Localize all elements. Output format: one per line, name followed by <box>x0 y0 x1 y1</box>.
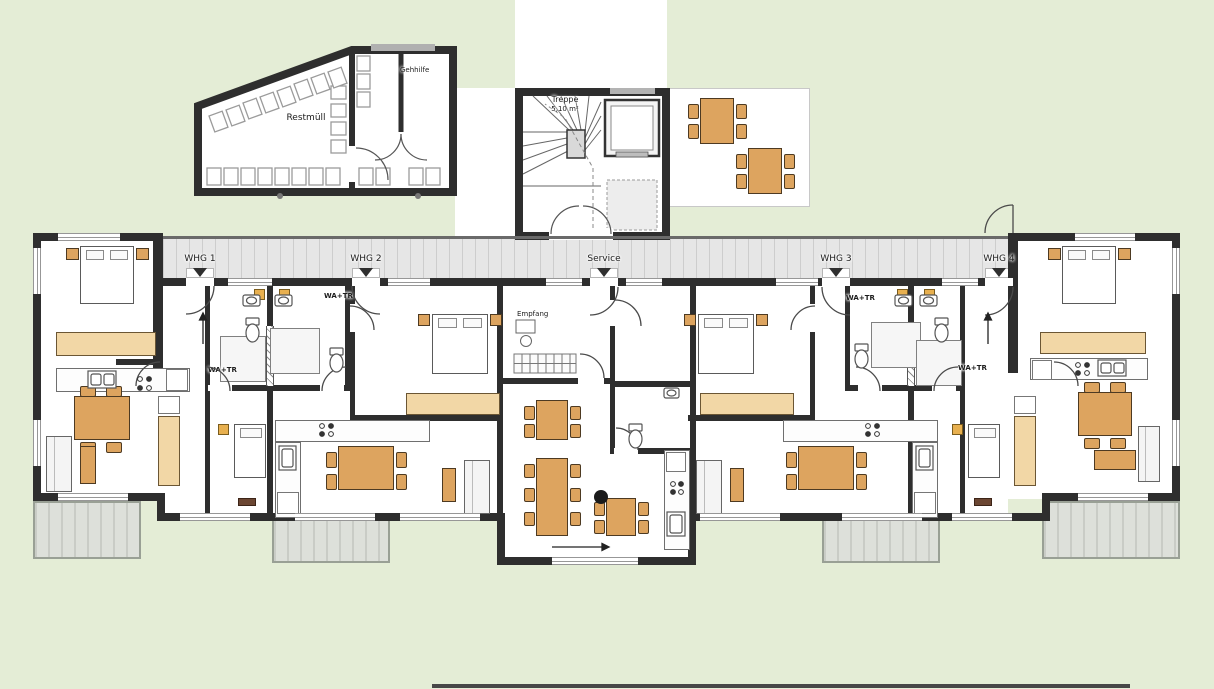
door-opening <box>578 378 604 384</box>
wardrobe <box>406 393 500 415</box>
chair <box>786 474 797 490</box>
chair <box>638 520 649 534</box>
coffee-table <box>442 468 456 502</box>
kitchen-counter <box>783 420 938 442</box>
door-opening <box>590 278 618 286</box>
door-opening <box>320 385 344 391</box>
sofa <box>464 460 490 514</box>
cabinet <box>1014 396 1036 414</box>
wardrobe <box>1040 332 1146 354</box>
door-opening <box>350 304 355 332</box>
equipment-icon <box>952 424 963 435</box>
washer-dryer-icon <box>279 289 290 300</box>
nightstand <box>1048 248 1061 260</box>
shower <box>871 322 921 368</box>
tv <box>974 498 992 506</box>
balcony <box>1042 501 1180 559</box>
door-opening <box>352 278 380 286</box>
entrance-marker <box>193 268 207 277</box>
dining-table <box>798 446 854 490</box>
chair <box>786 452 797 468</box>
door-opening <box>810 304 815 332</box>
cabinet <box>166 369 188 391</box>
balcony-door <box>1078 493 1148 501</box>
chair <box>736 104 747 119</box>
dining-table <box>700 98 734 144</box>
chair <box>106 386 122 397</box>
cabinet <box>914 492 936 514</box>
entrance-marker <box>359 268 373 277</box>
chair <box>326 452 337 468</box>
stairs-area-label: 5,10 m² <box>535 105 595 113</box>
washer-dryer-icon <box>254 289 265 300</box>
window <box>700 513 780 521</box>
site-boundary <box>432 684 1130 688</box>
reception-label: Empfang <box>517 310 548 318</box>
door-opening <box>186 278 214 286</box>
wc-wall <box>610 381 615 454</box>
dining-table <box>606 498 636 536</box>
washer-dryer-label: WA+TR <box>958 364 987 372</box>
unit-label-whg-4: WHG 4 <box>966 254 1032 264</box>
chair <box>1084 382 1100 393</box>
chair <box>524 406 535 420</box>
chair <box>856 452 867 468</box>
nightstand <box>490 314 502 326</box>
door-opening <box>858 385 882 391</box>
nightstand <box>684 314 696 326</box>
walking-aid-room-label: Gehhilfe <box>400 66 429 74</box>
chair <box>688 104 699 119</box>
wardrobe <box>700 393 794 415</box>
facade-wall <box>163 278 1008 286</box>
window <box>546 278 582 286</box>
wardrobe <box>1014 416 1036 486</box>
chair <box>570 488 581 502</box>
door-opening <box>614 448 638 454</box>
shower <box>916 340 962 386</box>
double-bed <box>1062 246 1116 304</box>
nightstand <box>418 314 430 326</box>
entrance-marker <box>597 268 611 277</box>
chair <box>106 442 122 453</box>
chair <box>326 474 337 490</box>
dining-table <box>748 148 782 194</box>
chair <box>396 474 407 490</box>
balcony-door <box>842 513 922 521</box>
window <box>228 278 272 286</box>
nightstand <box>756 314 768 326</box>
window <box>626 278 662 286</box>
cabinet <box>666 452 686 472</box>
room-wall <box>960 385 965 519</box>
window <box>1172 248 1180 294</box>
chair <box>570 464 581 478</box>
washer-dryer-label: WA+TR <box>324 292 353 300</box>
window <box>1172 420 1180 466</box>
chair <box>524 464 535 478</box>
door-opening <box>610 300 615 326</box>
coffee-table <box>80 446 96 484</box>
chair <box>594 520 605 534</box>
chair <box>524 488 535 502</box>
chair <box>80 386 96 397</box>
window <box>1075 233 1135 241</box>
stairs-label: Treppe <box>535 95 595 104</box>
window <box>58 233 120 241</box>
chair <box>736 174 747 189</box>
waste-room-label: Restmüll <box>273 113 339 123</box>
window <box>388 278 430 286</box>
single-bed <box>234 424 266 478</box>
coffee-table <box>730 468 744 502</box>
window <box>33 420 41 466</box>
coffee-table <box>1094 450 1136 470</box>
entrance-door <box>552 557 638 565</box>
entrance-marker <box>992 268 1006 277</box>
chair <box>570 406 581 420</box>
sofa <box>696 460 722 514</box>
chair <box>570 424 581 438</box>
entrance-marker <box>829 268 843 277</box>
bath-wall <box>205 286 210 390</box>
chair <box>856 474 867 490</box>
chair <box>1110 382 1126 393</box>
balcony-door <box>58 493 128 501</box>
washer-dryer-icon <box>924 289 935 300</box>
sofa <box>46 436 72 492</box>
chair <box>784 174 795 189</box>
chair <box>570 512 581 526</box>
dining-table <box>74 396 130 440</box>
chair <box>736 154 747 169</box>
room-wall <box>116 359 158 365</box>
walkway-railing <box>163 236 1008 239</box>
door-opening <box>822 278 850 286</box>
double-bed <box>80 246 134 304</box>
wc-wall <box>610 381 690 387</box>
chair <box>524 424 535 438</box>
dining-table <box>338 446 394 490</box>
nightstand <box>1118 248 1131 260</box>
unit-label-whg-3: WHG 3 <box>803 254 869 264</box>
cabinet <box>277 492 299 514</box>
wardrobe <box>158 416 180 486</box>
washer-dryer-icon <box>897 289 908 300</box>
shower <box>220 336 266 382</box>
kitchen-counter <box>275 420 430 442</box>
unit-label-service: Service <box>571 254 637 264</box>
dining-table <box>536 458 568 536</box>
window <box>33 248 41 294</box>
equipment-icon <box>218 424 229 435</box>
chair <box>524 512 535 526</box>
wardrobe <box>56 332 156 356</box>
room-wall <box>205 385 210 519</box>
party-wall <box>267 286 273 519</box>
unit-label-whg-2: WHG 2 <box>333 254 399 264</box>
washer-dryer-label: WA+TR <box>846 294 875 302</box>
dining-table <box>1078 392 1132 436</box>
chair <box>688 124 699 139</box>
stairwell-approach <box>515 0 667 92</box>
double-bed <box>432 314 488 374</box>
door-opening <box>985 278 1013 286</box>
balcony <box>822 519 940 563</box>
balcony <box>272 519 390 563</box>
unit-label-whg-1: WHG 1 <box>167 254 233 264</box>
window <box>952 513 1012 521</box>
window <box>776 278 818 286</box>
sofa <box>1138 426 1160 482</box>
balcony-door <box>295 513 375 521</box>
chair <box>736 124 747 139</box>
double-bed <box>698 314 754 374</box>
chair <box>1110 438 1126 449</box>
chair <box>396 452 407 468</box>
single-bed <box>968 424 1000 478</box>
window <box>180 513 250 521</box>
shower <box>270 328 320 374</box>
chair <box>784 154 795 169</box>
dining-table <box>536 400 568 440</box>
nightstand <box>136 248 149 260</box>
nightstand <box>66 248 79 260</box>
cabinet <box>1032 360 1052 380</box>
floor-plan: Restmüll Gehhilfe Treppe 5,10 m² <box>0 0 1214 689</box>
tv <box>238 498 256 506</box>
washer-dryer-label: WA+TR <box>208 366 237 374</box>
chair <box>638 502 649 516</box>
balcony <box>33 501 141 559</box>
chair <box>594 502 605 516</box>
cabinet <box>158 396 180 414</box>
window <box>942 278 978 286</box>
chair <box>1084 438 1100 449</box>
door-opening <box>208 385 232 391</box>
window <box>400 513 480 521</box>
